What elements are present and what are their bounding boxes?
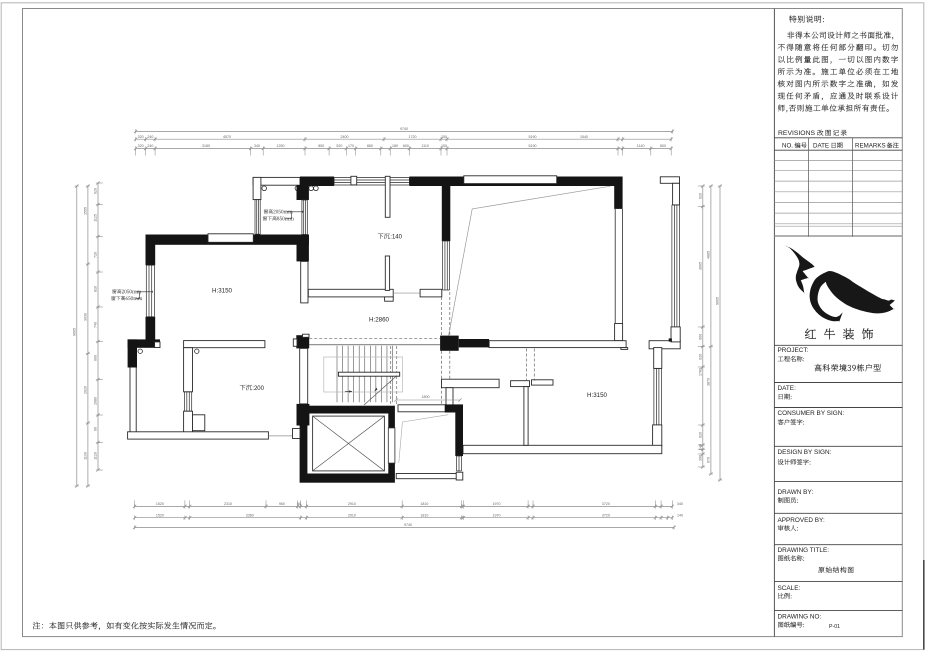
svg-text:90: 90 [297, 502, 301, 506]
svg-text:1780: 1780 [699, 368, 703, 376]
svg-text:H:3150: H:3150 [212, 287, 233, 294]
svg-text:P-01: P-01 [829, 624, 840, 630]
svg-text:720: 720 [94, 252, 98, 258]
svg-text:DRAWN BY:: DRAWN BY: [778, 489, 814, 496]
svg-text:2620: 2620 [84, 386, 88, 394]
svg-text:740: 740 [94, 322, 98, 328]
svg-text:5190: 5190 [529, 144, 537, 148]
svg-text:520: 520 [336, 144, 342, 148]
svg-text:1125: 1125 [94, 214, 98, 222]
svg-text:3360: 3360 [246, 513, 254, 517]
svg-text:1250: 1250 [277, 144, 285, 148]
svg-text:9065: 9065 [73, 328, 77, 336]
svg-text:1970: 1970 [493, 502, 501, 506]
svg-text:340: 340 [677, 502, 683, 506]
svg-text:2400: 2400 [341, 135, 349, 139]
svg-text:3720: 3720 [602, 513, 610, 517]
svg-text:9065: 9065 [716, 297, 720, 305]
svg-text:1130: 1130 [84, 452, 88, 460]
svg-text:1120: 1120 [94, 452, 98, 460]
svg-text:240: 240 [147, 144, 153, 148]
svg-text:2080: 2080 [94, 397, 98, 405]
svg-text:600: 600 [94, 355, 98, 361]
svg-text:960: 960 [279, 502, 285, 506]
svg-text:DATE: DATE [813, 143, 829, 150]
svg-text:620: 620 [699, 193, 703, 199]
svg-text:180: 180 [392, 144, 398, 148]
svg-text:1110: 1110 [421, 144, 428, 148]
svg-text:810: 810 [94, 286, 98, 292]
svg-text:H:2860: H:2860 [369, 317, 390, 324]
svg-text:1810: 1810 [420, 513, 428, 517]
svg-text:320: 320 [138, 135, 144, 139]
svg-text:2910: 2910 [348, 502, 356, 506]
svg-text:90: 90 [94, 427, 98, 431]
svg-text:670: 670 [707, 457, 711, 463]
svg-text:600: 600 [699, 334, 703, 340]
svg-text:620: 620 [699, 354, 703, 360]
svg-text:5190: 5190 [529, 135, 537, 139]
svg-text:PROJECT:: PROJECT: [778, 347, 809, 354]
svg-text:SCALE:: SCALE: [778, 585, 801, 592]
svg-text:150: 150 [441, 144, 447, 148]
svg-text:3870: 3870 [707, 378, 711, 386]
svg-text::200: :200 [252, 386, 264, 392]
svg-text:3720: 3720 [602, 502, 610, 506]
svg-text:880: 880 [367, 144, 373, 148]
svg-text:REVISIONS: REVISIONS [778, 130, 815, 137]
svg-text:9740: 9740 [404, 523, 412, 527]
svg-text:850: 850 [318, 144, 324, 148]
svg-text:620: 620 [699, 432, 703, 438]
svg-text:170: 170 [348, 144, 354, 148]
svg-text:1800: 1800 [422, 395, 430, 399]
svg-text:DRAWING NO:: DRAWING NO: [778, 614, 822, 621]
svg-text:140: 140 [677, 513, 683, 517]
svg-text:240: 240 [147, 135, 153, 139]
svg-text:APPROVED BY:: APPROVED BY: [778, 517, 825, 524]
svg-text:4885: 4885 [707, 251, 711, 259]
svg-text:340: 340 [254, 144, 260, 148]
svg-text:DRAWING TITLE:: DRAWING TITLE: [778, 547, 830, 554]
svg-text:1540: 1540 [580, 135, 588, 139]
svg-text:2910: 2910 [348, 513, 356, 517]
svg-text:DATE:: DATE: [778, 385, 797, 392]
svg-text:1720: 1720 [409, 135, 417, 139]
svg-text:620: 620 [94, 188, 98, 194]
svg-text:9740: 9740 [400, 127, 408, 131]
svg-text:800: 800 [660, 144, 666, 148]
svg-text:1140: 1140 [637, 144, 645, 148]
svg-text:320: 320 [138, 144, 144, 148]
svg-text:3665: 3665 [699, 262, 703, 270]
svg-text:3030: 3030 [84, 313, 88, 321]
svg-text:REMARKS: REMARKS [855, 143, 886, 150]
svg-text:1970: 1970 [493, 513, 501, 517]
svg-text:1520: 1520 [156, 513, 164, 517]
svg-text:1520: 1520 [156, 502, 164, 506]
svg-text:140: 140 [699, 444, 703, 450]
svg-text:4570: 4570 [223, 135, 231, 139]
svg-text:NO.: NO. [782, 143, 793, 150]
svg-text:DESIGN BY SIGN:: DESIGN BY SIGN: [778, 449, 832, 456]
svg-text:H:3150: H:3150 [587, 392, 608, 399]
svg-text:CONSUMER BY SIGN:: CONSUMER BY SIGN: [778, 410, 845, 417]
svg-text:2310: 2310 [224, 502, 232, 506]
svg-text:390: 390 [699, 455, 703, 461]
svg-text::140: :140 [390, 234, 402, 240]
svg-text:600: 600 [403, 144, 409, 148]
svg-text:3180: 3180 [202, 144, 210, 148]
svg-text:1555: 1555 [84, 207, 88, 215]
svg-text:150: 150 [441, 135, 447, 139]
svg-text:1810: 1810 [420, 502, 428, 506]
